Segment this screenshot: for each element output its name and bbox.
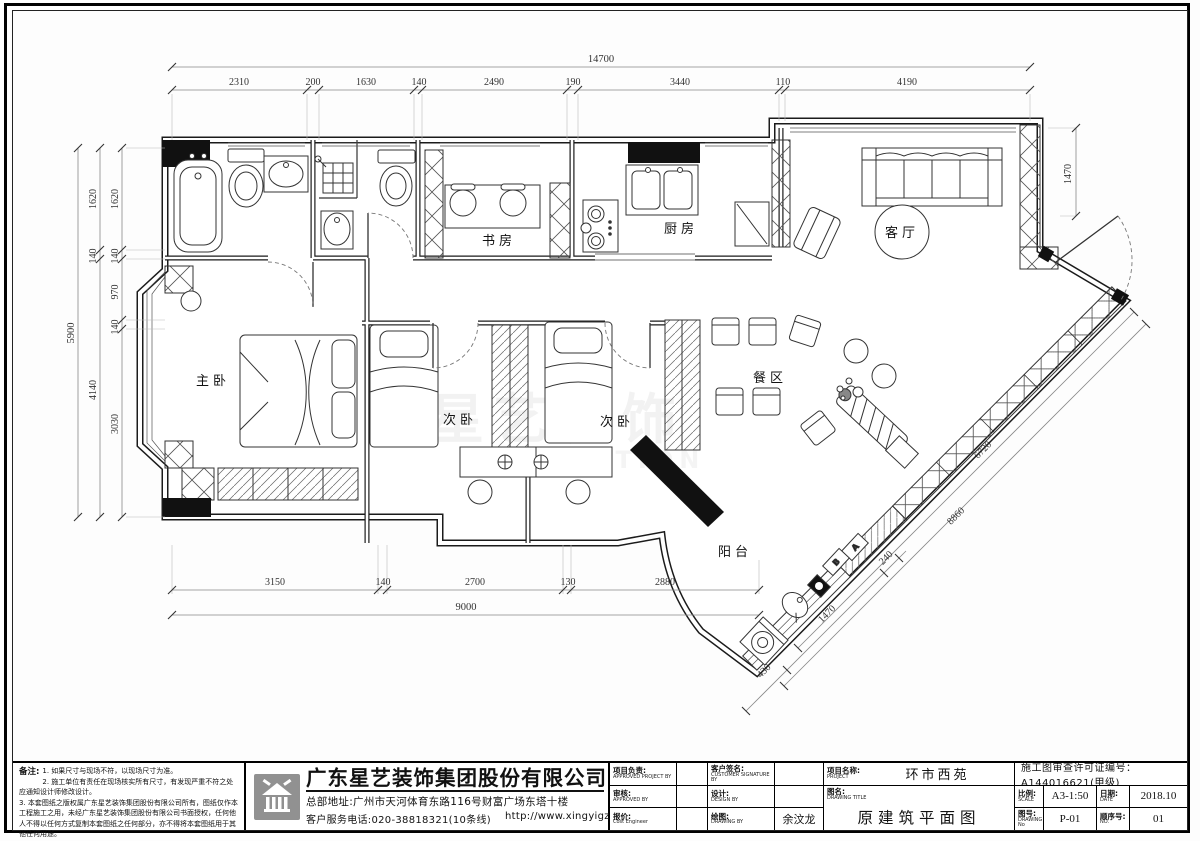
bathtub <box>174 154 222 253</box>
seq-en: NO. <box>1100 820 1126 825</box>
dim-left-o1: 140 <box>88 249 99 264</box>
cell-customer: 客户签名:CUSTOMER SIGNATURE BY <box>708 763 774 785</box>
draw-en: DRAWING BY <box>711 820 743 825</box>
title-block: 备注: 1. 如果尺寸与现场不符，以现场尺寸为准。 2. 施工单位有责任在现场核… <box>13 761 1187 830</box>
kitchen-sink <box>626 165 698 215</box>
title-en: DRAWING TITLE <box>827 796 866 801</box>
cell-drawing-no-value: P-01 <box>1044 808 1096 830</box>
cell-design-value <box>775 786 823 808</box>
notes-heading: 备注: <box>19 766 39 779</box>
scale-en: SCALE <box>1018 798 1036 803</box>
cell-review-value <box>677 786 707 808</box>
stool <box>181 291 201 311</box>
toilet-1 <box>228 149 264 207</box>
cell-permit: 施工图审查许可证编号：A144016621(甲级) <box>1015 763 1187 785</box>
label-balcony: 阳台 <box>718 545 752 560</box>
dim-top-3: 140 <box>412 77 427 88</box>
dim-left-o2: 4140 <box>88 380 99 400</box>
dim-top-2: 1630 <box>356 77 376 88</box>
round-stool <box>844 339 868 363</box>
toilet-2 <box>378 150 415 206</box>
stove <box>581 200 618 252</box>
bed-2 <box>370 325 438 447</box>
desk-chair <box>566 480 590 504</box>
label-master-bedroom: 主卧 <box>196 374 230 389</box>
label-kitchen: 厨房 <box>664 221 698 237</box>
study-chair <box>500 190 526 216</box>
dim-top-1: 200 <box>306 77 321 88</box>
dining-chair <box>716 388 743 415</box>
dim-left-i4: 3030 <box>110 414 121 434</box>
company-name: 广东星艺装饰集团股份有限公司 <box>306 767 604 793</box>
wardrobe-bedroom2-3 <box>492 325 528 447</box>
sofa <box>862 148 1002 206</box>
seq-value: 01 <box>1133 813 1184 825</box>
dim-top-0: 2310 <box>229 77 249 88</box>
cell-project-lead: 项目负责:APPROVED PROJECT BY <box>610 763 676 785</box>
no-value: P-01 <box>1047 813 1093 825</box>
cell-drawing-title: 图名:DRAWING TITLE 原建筑平面图 <box>824 786 1014 830</box>
notes-line3: 3. 本套图纸之版权属广东星艺装饰集团股份有限公司所有，图纸仅作本工程施工之用，… <box>19 798 238 840</box>
cell-quote-value <box>677 808 707 830</box>
cell-seq-value: 01 <box>1130 808 1187 830</box>
label-bedroom2: 次卧 <box>443 412 477 428</box>
desk-chair <box>468 480 492 504</box>
dim-diag-8860: 8860 <box>945 505 967 527</box>
cell-seq: 顺序号:NO. <box>1097 808 1129 830</box>
title-block-grid: 项目负责:APPROVED PROJECT BY 客户签名:CUSTOMER S… <box>610 763 1187 830</box>
draw-value: 余汶龙 <box>778 811 820 827</box>
company-text: 广东星艺装饰集团股份有限公司 总部地址:广州市天河体育东路116号财富广场东塔十… <box>306 767 604 827</box>
project-lead-en: APPROVED PROJECT BY <box>613 775 671 780</box>
cell-draw-value: 余汶龙 <box>775 808 823 830</box>
review-en: APPROVED BY <box>613 798 648 803</box>
cell-scale: 比例:SCALE <box>1015 786 1043 808</box>
dim-bottom-2: 2700 <box>465 577 485 588</box>
notes-line1: 1. 如果尺寸与现场不符，以现场尺寸为准。 <box>19 766 238 777</box>
dim-left-o0: 1620 <box>88 189 99 209</box>
master-bed <box>240 335 357 447</box>
company-cell: 广东星艺装饰集团股份有限公司 总部地址:广州市天河体育东路116号财富广场东塔十… <box>246 763 610 830</box>
dim-left-i1: 140 <box>110 249 121 264</box>
notes-cell: 备注: 1. 如果尺寸与现场不符，以现场尺寸为准。 2. 施工单位有责任在现场核… <box>13 763 246 830</box>
cell-project-lead-value <box>677 763 707 785</box>
dim-right-1470: 1470 <box>1063 164 1074 184</box>
dim-top-4: 2490 <box>484 77 504 88</box>
round-stool <box>872 364 896 388</box>
scale-value: A3-1:50 <box>1047 790 1093 802</box>
company-address: 总部地址:广州市天河体育东路116号财富广场东塔十楼 <box>306 794 604 809</box>
cell-drawing-no: 图号:DRAWING No <box>1015 808 1043 830</box>
dim-top-8: 4190 <box>897 77 917 88</box>
dim-left-i2: 970 <box>110 285 121 300</box>
dim-top-5: 190 <box>566 77 581 88</box>
cell-quote: 报价:Cost Engineer <box>610 808 676 830</box>
floor-plan-canvas: 星艺装饰 DECORATION <box>0 0 1200 758</box>
design-en: DESIGN BY <box>711 798 738 803</box>
drawing-sheet: 星艺装饰 DECORATION <box>0 0 1200 841</box>
dim-bottom-1: 140 <box>376 577 391 588</box>
cell-design: 设计:DESIGN BY <box>708 786 774 808</box>
dim-left-i0: 1620 <box>110 189 121 209</box>
quote-en: Cost Engineer <box>613 820 648 825</box>
label-living: 客厅 <box>885 225 919 241</box>
date-en: DATE <box>1100 798 1118 803</box>
label-dining: 餐区 <box>753 370 787 386</box>
notes-line2: 2. 施工单位有责任在现场核实所有尺寸，有发现严重不符之处应通知设计师修改设计。 <box>19 777 238 798</box>
cell-scale-value: A3-1:50 <box>1044 786 1096 808</box>
cell-date-value: 2018.10 <box>1130 786 1187 808</box>
label-bedroom3: 次卧 <box>600 414 634 430</box>
cell-customer-value <box>775 763 823 785</box>
dining-chair <box>753 388 780 415</box>
study-chair <box>450 190 476 216</box>
customer-en: CUSTOMER SIGNATURE BY <box>711 773 771 784</box>
dining-chair <box>749 318 776 345</box>
wardrobe-master <box>218 468 358 500</box>
dim-top-6: 3440 <box>670 77 690 88</box>
dim-top-total: 14700 <box>588 54 614 65</box>
dim-bottom-3: 130 <box>561 577 576 588</box>
project-name-value: 环市西苑 <box>864 764 1011 783</box>
sink-2 <box>321 211 353 249</box>
cell-project-name: 项目名称:PROJECT 环市西苑 <box>824 763 1014 785</box>
company-phone: 客户服务电话:020-38818321(10条线) <box>306 811 491 826</box>
cell-review: 审核:APPROVED BY <box>610 786 676 808</box>
label-study: 书房 <box>482 233 516 249</box>
dining-chair <box>712 318 739 345</box>
project-en: PROJECT <box>827 775 860 780</box>
company-logo <box>254 774 300 820</box>
date-value: 2018.10 <box>1133 790 1184 802</box>
no-en: DRAWING No <box>1018 818 1042 829</box>
dim-top-7: 110 <box>776 77 791 88</box>
fridge <box>735 202 769 246</box>
dim-bottom-total: 9000 <box>456 602 477 613</box>
dim-bottom-4: 2880 <box>655 577 675 588</box>
wardrobe-bedroom3 <box>665 320 700 450</box>
sink-1 <box>264 156 308 192</box>
cell-draw: 绘图:DRAWING BY <box>708 808 774 830</box>
drawing-title-value: 原建筑平面图 <box>824 806 1014 828</box>
dim-left-total: 5900 <box>66 323 77 344</box>
dim-bottom-0: 3150 <box>265 577 285 588</box>
study-furniture <box>445 184 540 228</box>
house-logo-icon <box>259 779 295 815</box>
dim-left-i3: 140 <box>110 320 121 335</box>
cell-date: 日期:DATE <box>1097 786 1129 808</box>
